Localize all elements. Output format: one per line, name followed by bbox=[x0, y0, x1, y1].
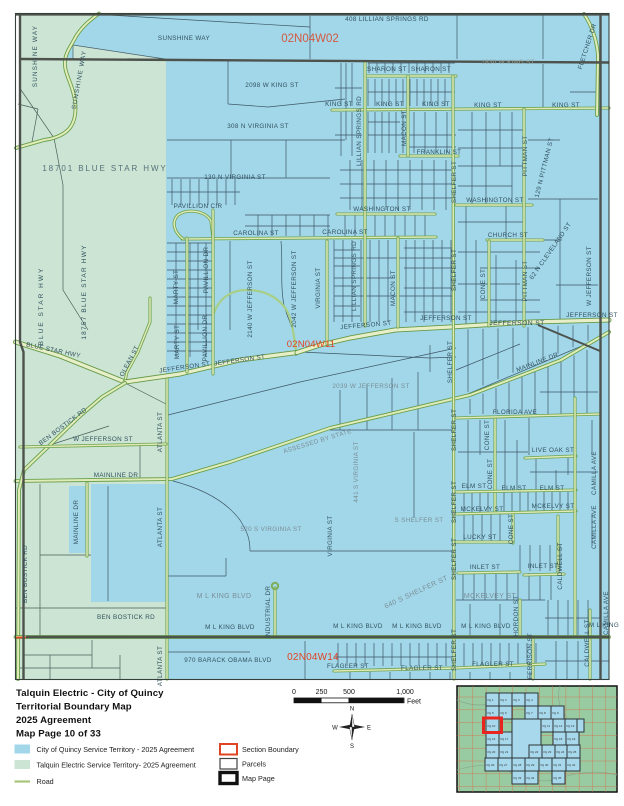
svg-text:CHURCH ST: CHURCH ST bbox=[488, 232, 528, 239]
svg-text:Pg 11: Pg 11 bbox=[543, 724, 551, 728]
svg-text:MARTY ST: MARTY ST bbox=[173, 270, 180, 304]
svg-text:2042 W JEFFERSON ST: 2042 W JEFFERSON ST bbox=[291, 250, 298, 327]
svg-text:JEFFERSON ST: JEFFERSON ST bbox=[489, 320, 544, 327]
svg-text:SHELFER ST: SHELFER ST bbox=[451, 409, 458, 451]
svg-text:JEFFERSON ST: JEFFERSON ST bbox=[420, 315, 471, 322]
svg-text:Pg 25: Pg 25 bbox=[569, 750, 577, 754]
svg-text:Map Page 10 of 33: Map Page 10 of 33 bbox=[16, 729, 101, 740]
svg-text:441 S VIRGINIA ST: 441 S VIRGINIA ST bbox=[353, 441, 360, 502]
svg-text:SHELFER ST: SHELFER ST bbox=[451, 538, 458, 580]
svg-text:CAMILLA AVE: CAMILLA AVE bbox=[591, 451, 598, 495]
svg-text:Road: Road bbox=[37, 777, 54, 786]
svg-text:1,000: 1,000 bbox=[396, 689, 414, 696]
svg-text:INLET ST: INLET ST bbox=[528, 563, 558, 570]
svg-text:SUNSHINE WAY: SUNSHINE WAY bbox=[32, 25, 39, 87]
svg-text:SHARON ST: SHARON ST bbox=[411, 66, 451, 73]
svg-text:Talquin Electric - City of Qui: Talquin Electric - City of Quincy bbox=[16, 688, 164, 699]
svg-text:Pg 19: Pg 19 bbox=[568, 737, 576, 741]
svg-text:Pg 2: Pg 2 bbox=[501, 698, 508, 702]
svg-text:130 N VIRGINIA ST: 130 N VIRGINIA ST bbox=[204, 174, 266, 181]
svg-text:M L KING BLVD: M L KING BLVD bbox=[205, 624, 255, 631]
svg-text:Pg 8: Pg 8 bbox=[540, 711, 547, 715]
svg-text:CAROLINA ST: CAROLINA ST bbox=[322, 229, 368, 236]
svg-text:Pg 21: Pg 21 bbox=[501, 750, 509, 754]
svg-text:2025 Agreement: 2025 Agreement bbox=[16, 715, 92, 726]
svg-text:FERRISON ST: FERRISON ST bbox=[527, 633, 534, 679]
svg-text:SHELFER ST: SHELFER ST bbox=[451, 249, 458, 291]
svg-text:FLAGLER ST: FLAGLER ST bbox=[472, 661, 514, 668]
svg-text:VIRGINIA ST: VIRGINIA ST bbox=[327, 516, 334, 557]
svg-text:Pg 22: Pg 22 bbox=[531, 750, 539, 754]
svg-text:Pg 29: Pg 29 bbox=[527, 763, 535, 767]
svg-text:408 LILLIAN SPRINGS RD: 408 LILLIAN SPRINGS RD bbox=[345, 16, 429, 23]
svg-text:250: 250 bbox=[316, 689, 328, 696]
svg-text:Talquin Electric Service Terri: Talquin Electric Service Territory- 2025… bbox=[37, 761, 196, 770]
svg-text:Pg 27: Pg 27 bbox=[500, 763, 508, 767]
svg-text:Pg 17: Pg 17 bbox=[501, 737, 509, 741]
svg-text:FLAGLER ST: FLAGLER ST bbox=[327, 663, 369, 670]
svg-text:Feet: Feet bbox=[407, 699, 421, 706]
svg-text:M L KING: M L KING bbox=[589, 622, 619, 629]
svg-text:N: N bbox=[350, 707, 354, 713]
svg-text:FLORIDA AVE: FLORIDA AVE bbox=[493, 409, 537, 416]
svg-text:Map Page: Map Page bbox=[242, 774, 275, 783]
svg-text:Pg 4: Pg 4 bbox=[527, 698, 534, 702]
svg-text:MARTY ST: MARTY ST bbox=[174, 325, 181, 359]
svg-text:CALDWELL ST: CALDWELL ST bbox=[584, 619, 591, 666]
svg-text:02N04W02: 02N04W02 bbox=[281, 33, 339, 45]
svg-text:Pg 35: Pg 35 bbox=[554, 776, 562, 780]
svg-text:Parcels: Parcels bbox=[242, 760, 266, 769]
svg-text:PAVILLION DR: PAVILLION DR bbox=[202, 315, 209, 362]
svg-text:Pg 13: Pg 13 bbox=[567, 724, 575, 728]
svg-text:LIVE OAK ST: LIVE OAK ST bbox=[532, 447, 574, 454]
svg-text:ATLANTA ST: ATLANTA ST bbox=[157, 646, 164, 686]
svg-text:02N04W14: 02N04W14 bbox=[287, 652, 339, 663]
svg-text:0: 0 bbox=[292, 689, 296, 696]
svg-text:02N04W11: 02N04W11 bbox=[287, 339, 335, 350]
svg-text:Pg 10: Pg 10 bbox=[488, 724, 496, 728]
svg-text:BEN BOSTICK RD: BEN BOSTICK RD bbox=[22, 545, 29, 603]
svg-text:MAINLINE DR: MAINLINE DR bbox=[94, 472, 139, 479]
svg-text:WASHINGTON ST: WASHINGTON ST bbox=[466, 197, 523, 204]
svg-text:Pg 31: Pg 31 bbox=[554, 763, 562, 767]
svg-text:E: E bbox=[367, 726, 371, 732]
svg-text:Pg 33: Pg 33 bbox=[514, 776, 522, 780]
svg-text:CONE ST: CONE ST bbox=[487, 459, 494, 489]
svg-text:ELM ST: ELM ST bbox=[502, 485, 527, 492]
svg-text:Pg 23: Pg 23 bbox=[544, 750, 552, 754]
svg-text:Territorial Boundary Map: Territorial Boundary Map bbox=[16, 702, 132, 713]
svg-text:HORDON ST: HORDON ST bbox=[513, 596, 520, 637]
svg-text:WASHINGTON ST: WASHINGTON ST bbox=[353, 206, 410, 213]
svg-text:SHELFER ST: SHELFER ST bbox=[451, 629, 458, 671]
svg-text:KING ST: KING ST bbox=[376, 101, 404, 108]
svg-text:Pg 24: Pg 24 bbox=[557, 750, 565, 754]
svg-text:2098 W KING ST: 2098 W KING ST bbox=[245, 82, 299, 89]
svg-text:Pg 3: Pg 3 bbox=[514, 698, 521, 702]
svg-text:M L KING BLVD: M L KING BLVD bbox=[461, 623, 511, 630]
svg-text:S SHELFER ST: S SHELFER ST bbox=[395, 517, 444, 524]
svg-text:MCKELVEY ST: MCKELVEY ST bbox=[464, 593, 517, 600]
svg-text:CALDWELL ST: CALDWELL ST bbox=[557, 542, 564, 589]
svg-text:18701 BLUE STAR HWY: 18701 BLUE STAR HWY bbox=[42, 164, 167, 173]
svg-text:Pg 34: Pg 34 bbox=[527, 776, 535, 780]
svg-text:KING ST: KING ST bbox=[552, 102, 580, 109]
svg-text:CONE ST: CONE ST bbox=[484, 420, 491, 450]
svg-text:Pg 6: Pg 6 bbox=[501, 711, 508, 715]
svg-text:M L KING BLVD: M L KING BLVD bbox=[333, 623, 383, 630]
svg-text:ELM ST: ELM ST bbox=[462, 483, 487, 490]
svg-text:ATLANTA ST: ATLANTA ST bbox=[157, 412, 164, 452]
svg-text:SHARON ST: SHARON ST bbox=[367, 66, 407, 73]
svg-text:LUCKY ST: LUCKY ST bbox=[463, 534, 496, 541]
svg-text:BLUE STAR HWY: BLUE STAR HWY bbox=[38, 267, 45, 346]
svg-text:Pg 20: Pg 20 bbox=[488, 750, 496, 754]
svg-text:W JEFFERSON ST: W JEFFERSON ST bbox=[73, 436, 133, 443]
svg-text:KING ST: KING ST bbox=[325, 101, 353, 108]
svg-text:18757 BLUE STAR HWY: 18757 BLUE STAR HWY bbox=[81, 244, 88, 339]
svg-text:BEN BOSTICK RD: BEN BOSTICK RD bbox=[97, 614, 155, 621]
svg-text:Pg 1: Pg 1 bbox=[488, 698, 495, 702]
svg-text:INLET ST: INLET ST bbox=[470, 564, 500, 571]
svg-text:KING ST: KING ST bbox=[474, 102, 502, 109]
svg-text:INDUSTRIAL DR: INDUSTRIAL DR bbox=[265, 586, 272, 639]
svg-text:PITTMAN ST: PITTMAN ST bbox=[522, 136, 529, 177]
svg-text:SHELFER ST: SHELFER ST bbox=[451, 161, 458, 203]
svg-text:Pg 18: Pg 18 bbox=[555, 737, 563, 741]
svg-text:LILLIAN SPRINGS RD: LILLIAN SPRINGS RD bbox=[351, 241, 358, 311]
svg-text:City of Quincy Service Territo: City of Quincy Service Territory - 2025 … bbox=[37, 745, 195, 754]
svg-text:M L KING BLVD: M L KING BLVD bbox=[197, 593, 252, 600]
svg-text:MACON ST: MACON ST bbox=[401, 110, 408, 146]
svg-text:LILLIAN SPRINGS RD: LILLIAN SPRINGS RD bbox=[356, 96, 363, 166]
svg-text:1830 W KING ST: 1830 W KING ST bbox=[481, 59, 535, 66]
svg-text:308 N VIRGINIA ST: 308 N VIRGINIA ST bbox=[227, 123, 289, 130]
svg-text:Pg 28: Pg 28 bbox=[514, 763, 522, 767]
svg-text:MCKELVY ST: MCKELVY ST bbox=[461, 506, 504, 513]
svg-text:Pg 9: Pg 9 bbox=[553, 711, 560, 715]
svg-text:MCKELVY ST: MCKELVY ST bbox=[532, 503, 575, 510]
svg-text:MACON ST: MACON ST bbox=[390, 270, 397, 306]
svg-text:SHELFER ST: SHELFER ST bbox=[447, 341, 454, 383]
svg-text:ELM ST: ELM ST bbox=[540, 485, 565, 492]
svg-text:970 BARACK OBAMA BLVD: 970 BARACK OBAMA BLVD bbox=[184, 657, 271, 664]
svg-text:W JEFFERSON ST: W JEFFERSON ST bbox=[586, 246, 593, 306]
svg-text:Pg 5: Pg 5 bbox=[488, 711, 495, 715]
svg-text:S: S bbox=[350, 744, 354, 750]
svg-text:Pg 12: Pg 12 bbox=[555, 724, 563, 728]
svg-text:MAINLINE DR: MAINLINE DR bbox=[73, 500, 80, 545]
svg-text:JEFFERSON ST: JEFFERSON ST bbox=[566, 312, 617, 319]
svg-text:CONE ST: CONE ST bbox=[480, 269, 487, 299]
svg-text:CAMILLA AVE: CAMILLA AVE bbox=[591, 505, 598, 549]
svg-text:2140 W JEFFERSON ST: 2140 W JEFFERSON ST bbox=[247, 260, 254, 337]
svg-text:FRANKLIN ST: FRANKLIN ST bbox=[417, 149, 462, 156]
svg-text:M L KING BLVD: M L KING BLVD bbox=[392, 623, 442, 630]
svg-text:CONE ST: CONE ST bbox=[508, 514, 515, 544]
svg-text:ATLANTA ST: ATLANTA ST bbox=[157, 507, 164, 547]
svg-text:KING ST: KING ST bbox=[422, 101, 450, 108]
svg-text:520 S VIRGINIA ST: 520 S VIRGINIA ST bbox=[240, 526, 301, 533]
svg-text:PAVILLION CIR: PAVILLION CIR bbox=[174, 203, 223, 210]
svg-text:PAVILLION DR: PAVILLION DR bbox=[203, 247, 210, 294]
svg-text:Pg 30: Pg 30 bbox=[541, 763, 549, 767]
svg-text:Section Boundary: Section Boundary bbox=[242, 745, 299, 754]
svg-text:PITTMAN ST: PITTMAN ST bbox=[522, 261, 529, 302]
svg-text:SHELFER ST: SHELFER ST bbox=[451, 481, 458, 523]
svg-text:Pg 26: Pg 26 bbox=[487, 763, 495, 767]
svg-text:Pg 7: Pg 7 bbox=[527, 711, 534, 715]
svg-text:2039 W JEFFERSON ST: 2039 W JEFFERSON ST bbox=[332, 383, 409, 390]
svg-text:CAROLINA ST: CAROLINA ST bbox=[233, 230, 279, 237]
svg-text:Pg 16: Pg 16 bbox=[488, 737, 496, 741]
svg-text:500: 500 bbox=[343, 689, 355, 696]
svg-text:VIRGINIA ST: VIRGINIA ST bbox=[315, 268, 322, 309]
svg-text:Pg 32: Pg 32 bbox=[568, 763, 576, 767]
svg-text:FLAGLER ST: FLAGLER ST bbox=[401, 665, 443, 672]
svg-text:SUNSHINE WAY: SUNSHINE WAY bbox=[158, 35, 211, 42]
svg-text:W: W bbox=[332, 726, 338, 732]
